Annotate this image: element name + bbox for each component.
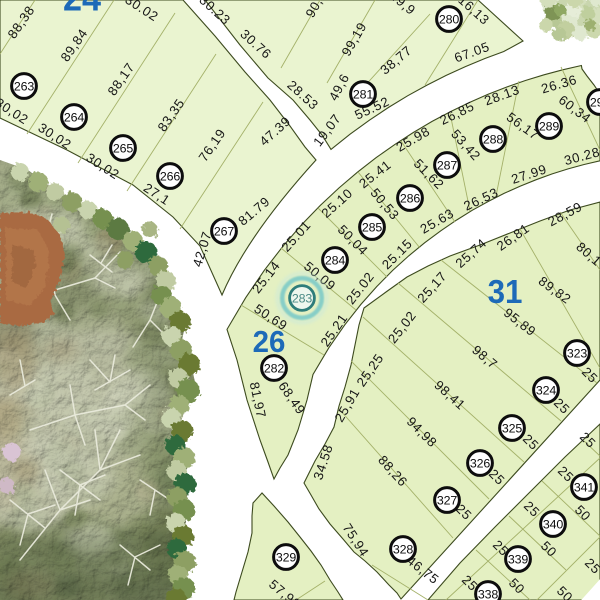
svg-text:341: 341 xyxy=(574,480,595,494)
svg-text:24: 24 xyxy=(63,0,102,19)
svg-text:265: 265 xyxy=(113,141,134,155)
svg-text:287: 287 xyxy=(437,158,458,172)
svg-text:282: 282 xyxy=(264,361,285,375)
svg-text:323: 323 xyxy=(567,346,588,360)
svg-text:283: 283 xyxy=(292,291,313,305)
svg-text:290: 290 xyxy=(590,95,600,109)
svg-text:288: 288 xyxy=(483,132,504,146)
svg-text:329: 329 xyxy=(276,550,297,564)
svg-text:267: 267 xyxy=(214,224,235,238)
svg-text:285: 285 xyxy=(362,220,383,234)
svg-text:340: 340 xyxy=(543,517,564,531)
svg-text:338: 338 xyxy=(478,587,499,600)
svg-text:281: 281 xyxy=(353,87,374,101)
svg-text:325: 325 xyxy=(502,421,523,435)
svg-text:31: 31 xyxy=(488,273,523,310)
svg-text:324: 324 xyxy=(536,383,557,397)
svg-text:26: 26 xyxy=(253,325,286,359)
svg-text:328: 328 xyxy=(393,542,414,556)
svg-text:326: 326 xyxy=(470,456,491,470)
svg-text:263: 263 xyxy=(14,79,35,93)
svg-text:266: 266 xyxy=(160,169,181,183)
svg-text:339: 339 xyxy=(508,552,529,566)
svg-text:327: 327 xyxy=(437,493,458,507)
svg-text:284: 284 xyxy=(325,253,346,267)
svg-text:289: 289 xyxy=(539,119,560,133)
svg-text:264: 264 xyxy=(64,110,85,124)
svg-text:280: 280 xyxy=(439,12,460,26)
svg-text:286: 286 xyxy=(400,191,421,205)
